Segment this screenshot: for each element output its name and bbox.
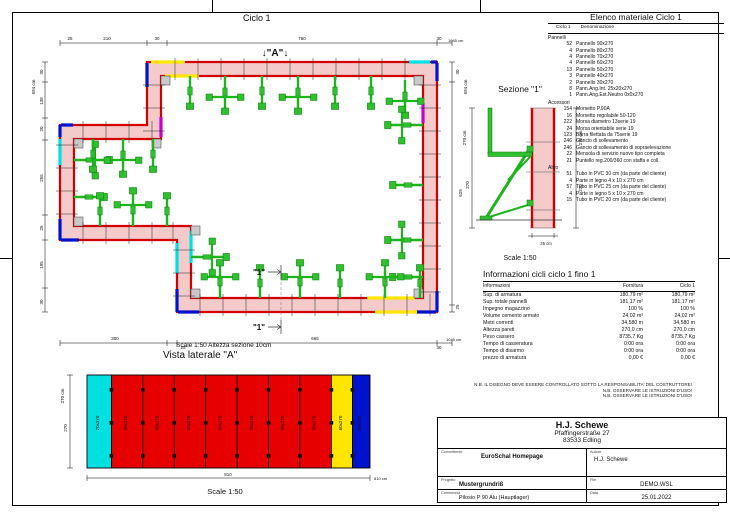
svg-text:810 cm: 810 cm [374, 476, 388, 481]
svg-text:30: 30 [154, 36, 160, 41]
cycle-info-row: Metri correnti34,580 m34,580 m [483, 320, 695, 327]
svg-text:1045 cm: 1045 cm [448, 38, 464, 43]
svg-text:210: 210 [103, 36, 111, 41]
svg-text:138: 138 [39, 97, 44, 105]
svg-text:25: 25 [67, 36, 73, 41]
cycle-info-row: Sup. totale pannelli181,17 m²181,17 m² [483, 299, 695, 306]
sideview-scale: Scale 1:50 [207, 487, 242, 496]
svg-text:195: 195 [39, 261, 44, 269]
section-scale: Scale 1:50 [503, 255, 536, 262]
svg-text:30: 30 [39, 69, 44, 75]
author-value: H.J. Schewe [594, 457, 723, 463]
svg-text:90x270: 90x270 [280, 415, 285, 430]
wall-outer-formwork [60, 62, 437, 312]
material-row: 15Tubo in PVC 20 cm (da parte del client… [548, 197, 724, 203]
svg-text:810: 810 [224, 472, 232, 477]
svg-text:665: 665 [311, 336, 319, 341]
plan-view: 25 210 30 760 30 1045 cm 694 cm 30 138 2… [15, 25, 480, 360]
svg-text:90x270: 90x270 [312, 415, 317, 430]
cycle-info-row: Peso cassero8735,7 Kg8735,7 Kg [483, 334, 695, 341]
svg-text:"1": "1" [253, 323, 265, 332]
cycle-info-table: Informazioni cicli ciclo 1 fino 1 Inform… [483, 271, 695, 362]
svg-text:30: 30 [455, 69, 460, 75]
wall-band [60, 62, 437, 312]
crop-mark [480, 0, 481, 12]
cycle-info-row: Sup. di armatura180,79 m²180,79 m² [483, 292, 695, 299]
cycle-info-row: Tempo di casseratura0:00 ora0:00 ora [483, 341, 695, 348]
svg-text:1045 cm: 1045 cm [446, 337, 462, 342]
material-col-cycle: Ciclo 1 [556, 25, 571, 31]
svg-text:300: 300 [111, 336, 119, 341]
material-list-header: Ciclo 1 Denominazione [548, 23, 724, 33]
svg-text:90x270: 90x270 [217, 415, 222, 430]
svg-text:30: 30 [436, 345, 442, 350]
material-row: 1Pann.Ang.Est.Neutro 0x0x270 [548, 92, 724, 98]
title-block-row-order: Commessa Pilosio P 90 Alu (Hauptlager) D… [438, 490, 726, 502]
svg-text:60x270: 60x270 [338, 415, 343, 430]
file-value: DEMO.WSL [590, 482, 723, 488]
material-group-other: Altro 51Tubo in PVC 30 cm (da parte del … [548, 165, 724, 203]
date-value: 25.01.2022 [590, 495, 723, 501]
nb-note-line: N.B. OSSERVARE LE ISTRUZIONI D'USO! [428, 393, 692, 399]
section-title: Sezione "1" [498, 84, 542, 94]
svg-text:90x270: 90x270 [249, 415, 254, 430]
svg-text:25: 25 [39, 225, 44, 231]
project-value: Mustergrundriß [459, 482, 583, 488]
drawing-sheet: Ciclo 1 [0, 0, 730, 517]
panel-accents-cyan [60, 62, 430, 273]
svg-text:270: 270 [465, 181, 470, 189]
svg-text:760: 760 [298, 36, 306, 41]
cycle-info-row: Tempo di disarmo0:00 ora0:00 ora [483, 348, 695, 355]
title-block-row-client: Committente EuroSchal Homepage Autore H.… [438, 449, 726, 477]
section-prop-assembly [480, 108, 533, 220]
cycle-info-header: Informazioni Fornitura Ciclo 1 [483, 281, 695, 292]
material-list-title: Elenco materiale Ciclo 1 [548, 14, 724, 20]
svg-text:"1": "1" [253, 268, 265, 277]
side-view: 70x270 90x270 90x270 90x270 90x270 90x27… [40, 366, 440, 511]
nb-notes: N.B. IL DISEGNO DEVE ESSERE CONTROLLATO … [428, 382, 692, 399]
crop-mark [0, 258, 12, 259]
svg-text:90x270: 90x270 [186, 415, 191, 430]
svg-text:90x270: 90x270 [123, 415, 128, 430]
svg-text:255: 255 [39, 174, 44, 182]
svg-text:70x270: 70x270 [95, 415, 100, 430]
title-block-row-project: Progetto Mustergrundriß File DEMO.WSL [438, 477, 726, 490]
svg-text:30: 30 [39, 299, 44, 305]
svg-text:694 cm: 694 cm [31, 79, 36, 94]
svg-text:270 cm: 270 cm [462, 130, 467, 145]
props [74, 76, 424, 298]
svg-text:50x270: 50x270 [357, 415, 362, 430]
svg-text:20: 20 [39, 126, 44, 132]
plan-title: Ciclo 1 [243, 13, 271, 23]
title-block-company: H.J. Schewe Pfaffingerstraße 27 83533 Ed… [438, 418, 726, 449]
panel-accents-magenta [161, 103, 423, 137]
svg-text:270 cm: 270 cm [60, 388, 65, 403]
marker-a: ↓"A"↓ [262, 48, 289, 59]
cycle-info-row: prezzo di armatura0,00 €0,00 € [483, 355, 695, 362]
cycle-info-row: Impegno magazzino100 %100 % [483, 306, 695, 313]
material-row: 21Puntello reg.200/360 con staffa e coll… [548, 158, 724, 164]
svg-text:90x270: 90x270 [155, 415, 160, 430]
plan-scale-note: Scale 1:50 Altezza sezione 10cm [176, 342, 271, 349]
client-value: EuroSchal Homepage [441, 454, 583, 460]
material-group-accessories: Accessori 154Morsetto P.90A16Morsetto re… [548, 100, 724, 164]
svg-text:25 cm: 25 cm [540, 241, 552, 246]
cycle-info-title: Informazioni cicli ciclo 1 fino 1 [483, 271, 695, 278]
title-block: H.J. Schewe Pfaffingerstraße 27 83533 Ed… [437, 417, 727, 503]
crop-mark [212, 0, 213, 12]
cycle-info-row: Volume cemento armato24,02 m³24,02 m³ [483, 313, 695, 320]
crop-mark [718, 258, 730, 259]
material-list: Elenco materiale Ciclo 1 Ciclo 1 Denomin… [548, 14, 724, 203]
order-value: Pilosio P 90 Alu (Hauptlager) [459, 495, 583, 501]
svg-text:30: 30 [436, 36, 442, 41]
material-group-panels: Pannelli 52Pannello 90x2704Pannello 80x2… [548, 35, 724, 99]
sideview-title: Vista laterale "A" [163, 350, 237, 361]
material-col-denomination: Denominazione [581, 25, 614, 31]
svg-text:25: 25 [455, 304, 460, 310]
svg-text:270: 270 [63, 424, 68, 432]
cycle-info-row: Altezza pareti270,0 cm270,0 cm [483, 327, 695, 334]
panel-accents-blue [60, 62, 437, 312]
